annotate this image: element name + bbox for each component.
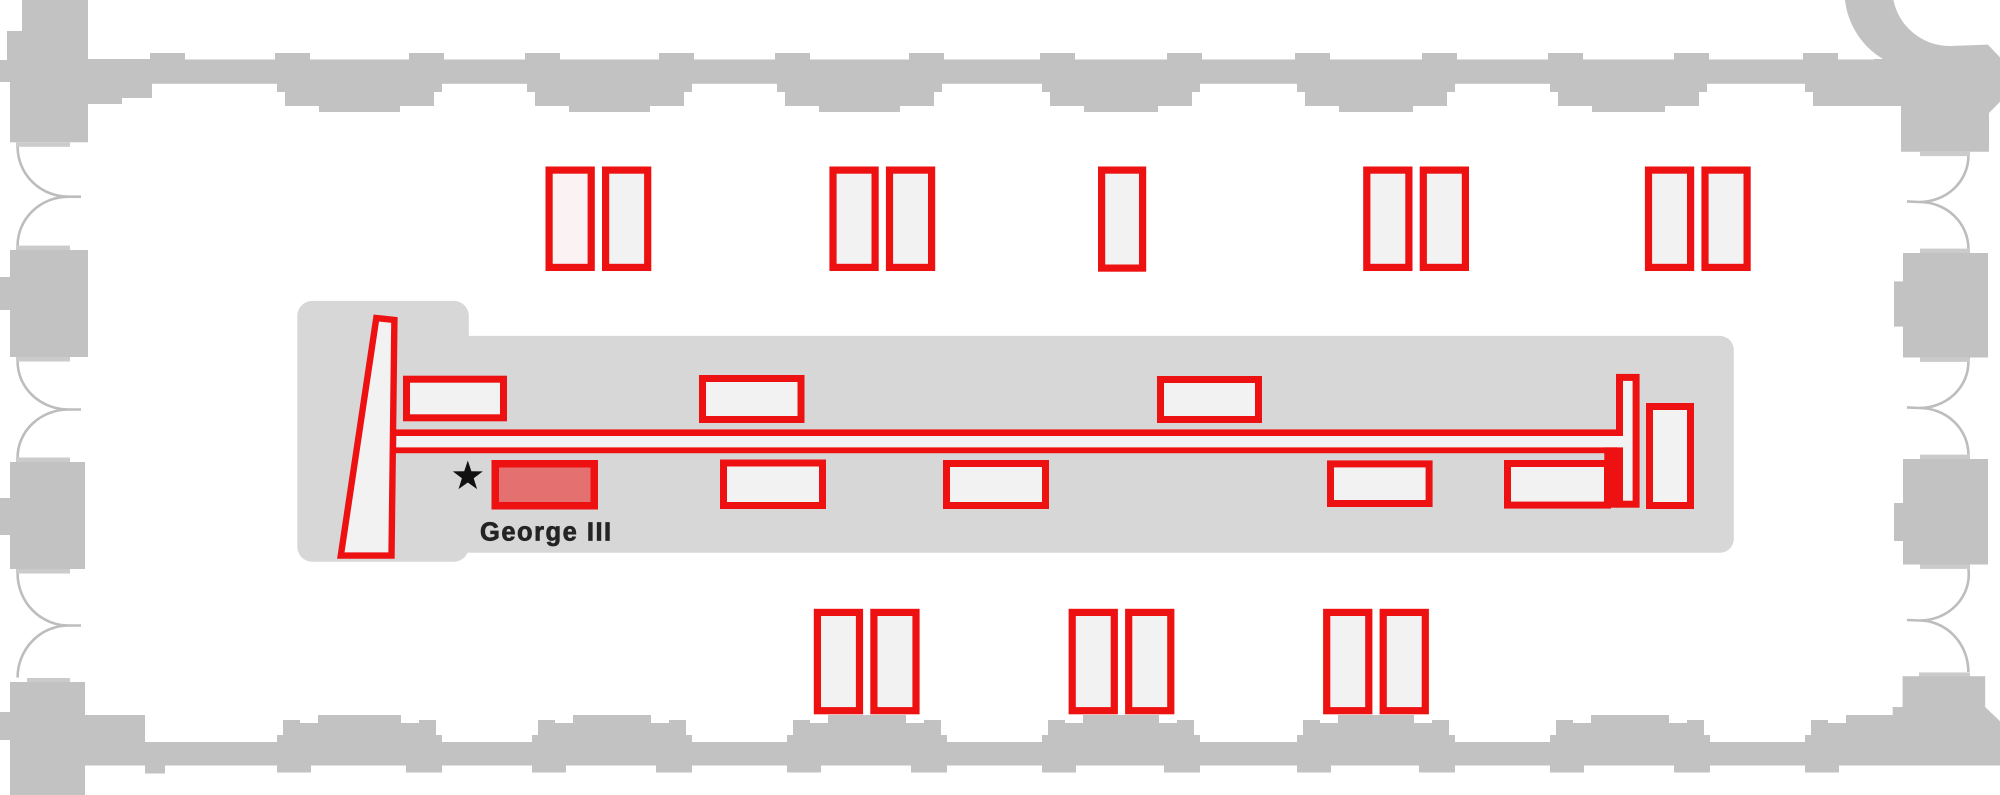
svg-text:George III: George III <box>480 519 613 547</box>
